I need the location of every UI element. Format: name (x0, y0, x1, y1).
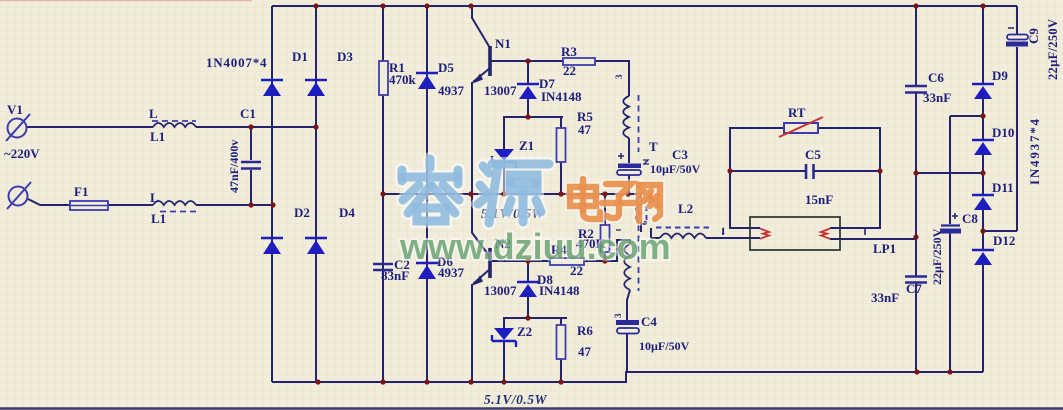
svg-text:D2: D2 (294, 205, 310, 220)
svg-text:C7: C7 (906, 281, 922, 296)
svg-text:1N4007*4: 1N4007*4 (206, 55, 267, 70)
svg-text:D4: D4 (339, 205, 355, 220)
svg-text:www.dziuu.com: www.dziuu.com (399, 226, 671, 267)
svg-text:D10: D10 (992, 125, 1014, 140)
svg-text:V1: V1 (7, 102, 23, 117)
svg-text:10µF/50V: 10µF/50V (639, 339, 690, 353)
svg-text:IN4148: IN4148 (539, 283, 580, 298)
svg-text:C6: C6 (928, 70, 944, 85)
svg-text:IN4148: IN4148 (541, 89, 582, 104)
svg-text:22µF/250V: 22µF/250V (930, 228, 944, 285)
svg-text:T: T (649, 139, 658, 154)
svg-text:C8: C8 (962, 211, 978, 226)
svg-text:R6: R6 (577, 323, 593, 338)
svg-text:83nF: 83nF (381, 268, 409, 283)
svg-text:33nF: 33nF (923, 90, 951, 105)
svg-text:~220V: ~220V (4, 146, 40, 161)
svg-text:N1: N1 (495, 36, 511, 51)
svg-text:470k: 470k (389, 72, 417, 87)
svg-text:C5: C5 (805, 147, 821, 162)
svg-text:LP1: LP1 (873, 241, 896, 256)
svg-text:D11: D11 (992, 180, 1014, 195)
svg-text:4937: 4937 (438, 265, 465, 280)
svg-text:IN4937*4: IN4937*4 (1027, 117, 1042, 185)
svg-text:15nF: 15nF (805, 192, 833, 207)
svg-text:47: 47 (578, 344, 592, 359)
svg-text:RT: RT (788, 105, 806, 120)
svg-text:13007: 13007 (484, 83, 517, 98)
svg-text:L: L (150, 190, 159, 205)
svg-text:5.1V/0.5W: 5.1V/0.5W (484, 392, 548, 407)
svg-text:22µF/250V: 22µF/250V (1046, 19, 1060, 80)
svg-text:C3: C3 (672, 147, 688, 162)
svg-text:33nF: 33nF (871, 290, 899, 305)
svg-text:3: 3 (614, 74, 624, 79)
svg-text:4937: 4937 (438, 83, 465, 98)
svg-text:13007: 13007 (484, 283, 517, 298)
svg-text:D12: D12 (993, 233, 1015, 248)
svg-text:10µF/50V: 10µF/50V (650, 162, 701, 176)
svg-text:R3: R3 (561, 44, 577, 59)
svg-text:C4: C4 (641, 314, 657, 329)
svg-text:C9: C9 (1026, 28, 1041, 44)
svg-text:22: 22 (563, 63, 576, 78)
svg-text:3: 3 (613, 313, 623, 318)
svg-text:D5: D5 (438, 60, 454, 75)
svg-text:C1: C1 (240, 106, 256, 121)
svg-text:L: L (149, 106, 158, 121)
svg-text:L2: L2 (678, 201, 693, 216)
svg-text:L1: L1 (150, 129, 165, 144)
svg-text:Z1: Z1 (519, 138, 534, 153)
svg-text:Z2: Z2 (517, 324, 532, 339)
svg-text:1: 1 (721, 226, 726, 236)
svg-text:47nF/400v: 47nF/400v (227, 140, 241, 193)
svg-text:D9: D9 (992, 68, 1008, 83)
svg-text:F1: F1 (74, 184, 88, 199)
svg-text:47: 47 (578, 122, 592, 137)
svg-text:D1: D1 (292, 49, 308, 64)
svg-text:D3: D3 (337, 49, 353, 64)
svg-text:L1: L1 (151, 211, 166, 226)
